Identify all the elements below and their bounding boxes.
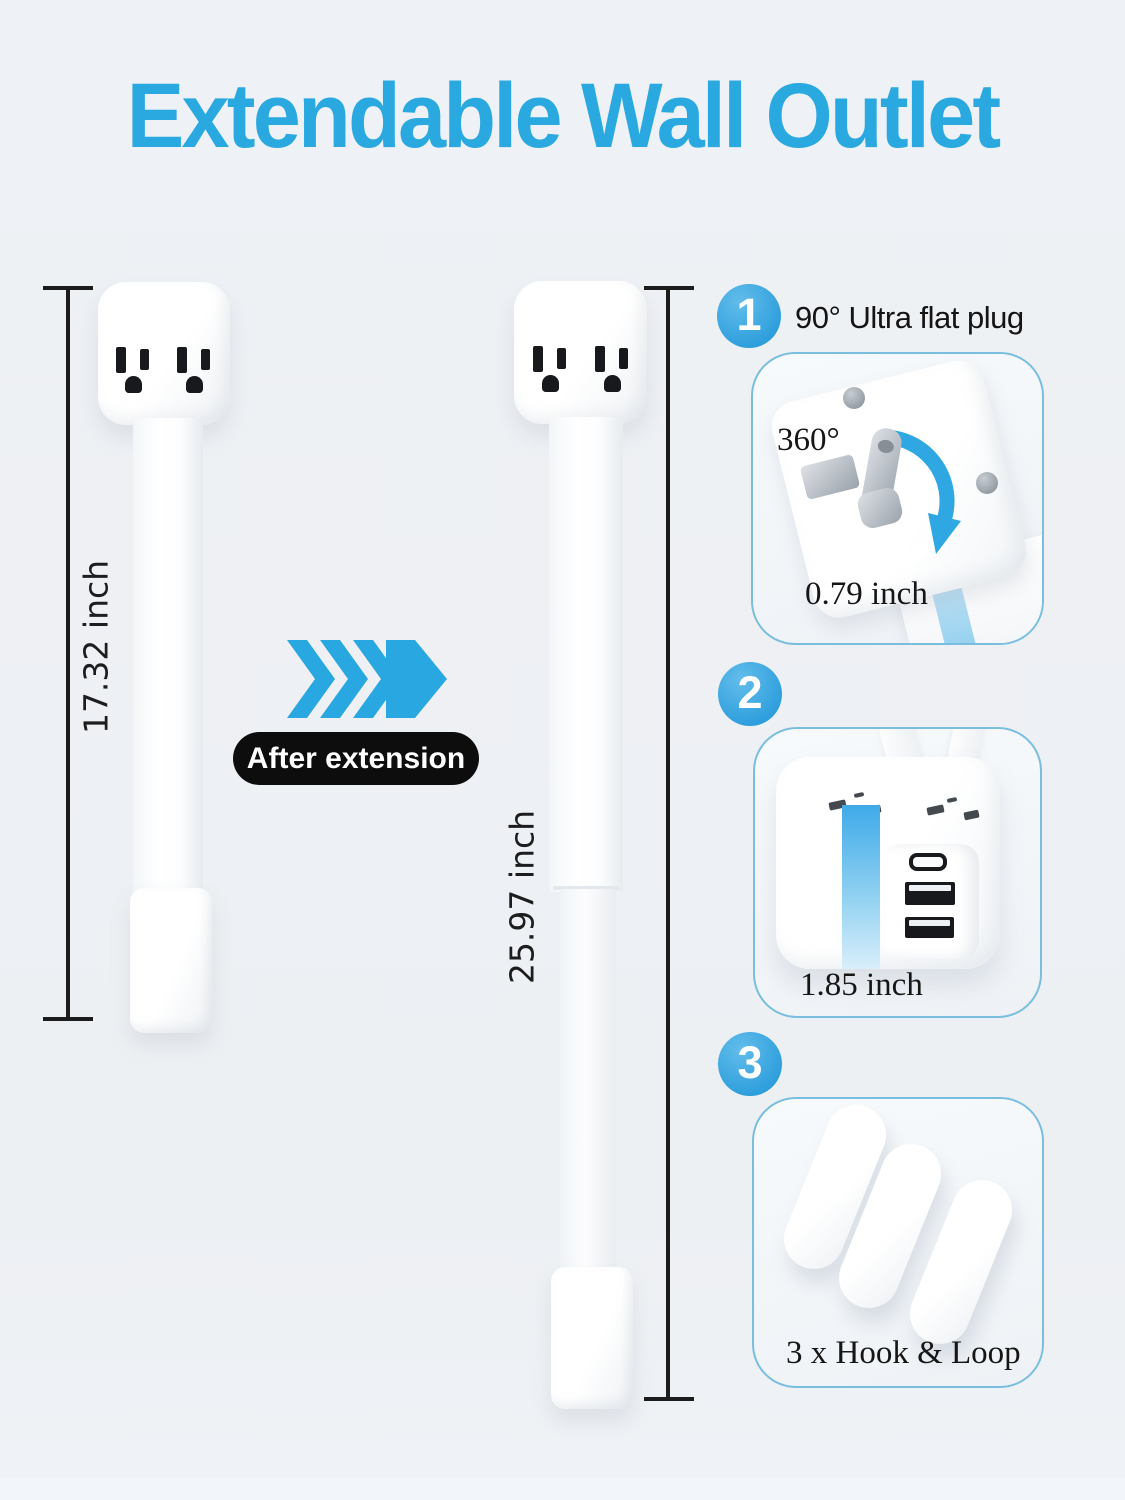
feature-3-box: 3 x Hook & Loop: [752, 1097, 1044, 1388]
hook-loop-caption: 3 x Hook & Loop: [786, 1335, 1021, 1372]
measurement-tick-top-after: [644, 286, 694, 290]
outlet-slot-icon: [533, 346, 543, 372]
measurement-label-before: 17.32 inch: [77, 560, 116, 734]
usb-panel: [883, 844, 979, 959]
feature-1-box: 360° 0.79 inch: [751, 352, 1044, 645]
measurement-line-after: [666, 288, 670, 1399]
usb-a-port-icon: [905, 917, 954, 938]
feature-1-number-badge: 1: [717, 284, 781, 348]
power-outlet-icon: [533, 346, 583, 394]
rotation-angle-label: 360°: [777, 422, 840, 459]
outlet-slot-icon: [963, 810, 979, 821]
measurement-tick-top-before: [43, 286, 93, 290]
outlet-slot-icon: [557, 348, 566, 369]
outlet-slot-icon: [926, 804, 944, 815]
outlet-slot-icon: [619, 348, 628, 369]
measurement-label-after: 25.97 inch: [503, 810, 542, 984]
outlet-cube: [776, 757, 1000, 969]
measurement-tick-bottom-before: [43, 1017, 93, 1021]
cube-width-label: 1.85 inch: [800, 967, 923, 1004]
outlet-head-after: [514, 281, 647, 424]
measurement-tick-bottom-after: [644, 1397, 694, 1401]
extension-sleeve-after: [549, 417, 623, 892]
feature-2-number-badge: 2: [718, 662, 782, 726]
end-cap-after: [551, 1267, 633, 1409]
power-outlet-icon: [595, 346, 645, 394]
outlet-slot-icon: [140, 349, 149, 370]
extension-rod-after: [560, 889, 616, 1275]
blue-stripe: [842, 805, 880, 969]
outlet-head-before: [98, 282, 230, 425]
usb-c-port-icon: [909, 853, 947, 871]
background-band: [0, 1478, 1125, 1500]
feature-3-number-badge: 3: [718, 1032, 782, 1096]
feature-1-heading: 90° Ultra flat plug: [795, 300, 1024, 336]
outlet-ground-hole-icon: [186, 376, 203, 393]
outlet-ground-hole-icon: [542, 375, 559, 392]
plug-depth-label: 0.79 inch: [805, 576, 928, 613]
page-title: Extendable Wall Outlet: [34, 64, 1092, 169]
product-infographic: Extendable Wall Outlet 17.32 inch After …: [0, 0, 1125, 1500]
feature-2-box: 1.85 inch: [753, 727, 1042, 1018]
outlet-slot-icon: [116, 347, 126, 373]
after-extension-badge: After extension: [233, 732, 479, 785]
outlet-ground-hole-icon: [125, 376, 142, 393]
end-cap-before: [130, 888, 212, 1033]
outlet-slot-icon: [595, 346, 605, 372]
power-outlet-icon: [177, 347, 227, 395]
outlet-slot-icon: [201, 349, 210, 370]
measurement-line-before: [66, 288, 70, 1021]
outlet-slot-icon: [177, 347, 187, 373]
extension-sleeve-before: [133, 418, 203, 893]
outlet-slot-icon: [947, 797, 958, 803]
extension-arrow-icon: [287, 640, 447, 718]
power-outlet-icon: [116, 347, 166, 395]
outlet-slot-icon: [854, 792, 865, 798]
outlet-ground-hole-icon: [604, 375, 621, 392]
usb-a-port-icon: [905, 882, 955, 905]
